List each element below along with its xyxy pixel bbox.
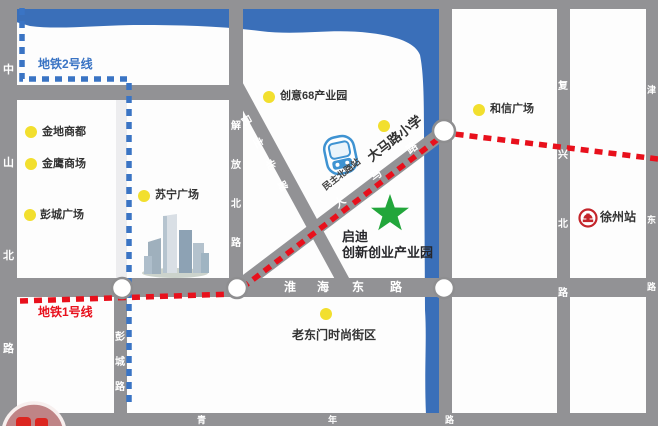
minor-street bbox=[116, 100, 127, 278]
poi-dot-laodongmen bbox=[320, 308, 332, 320]
road-char-huaihai: 淮 bbox=[284, 281, 296, 293]
location-map: 地铁2号线 地铁1号线 中 山 北 路 解 放 北 路 彭 城 路 复 兴 北 … bbox=[0, 0, 658, 426]
road-char: 北 bbox=[558, 219, 568, 231]
road-char-east: 东 bbox=[647, 214, 656, 226]
road-char: 路 bbox=[231, 238, 241, 250]
poi-dot-school bbox=[378, 120, 390, 132]
poi-dot-chuangyi68 bbox=[263, 91, 275, 103]
poi-label-chuangyi68: 创意68产业园 bbox=[280, 90, 347, 103]
road-char: 兴 bbox=[558, 150, 568, 162]
road-label-pengcheng: 彭 城 路 bbox=[115, 332, 125, 394]
road-label-fuxing: 复 兴 北 路 bbox=[558, 81, 568, 300]
road-char: 彭 bbox=[115, 332, 125, 344]
junction-node bbox=[434, 278, 454, 298]
road-char-huaihai: 东 bbox=[352, 281, 364, 293]
poi-label-laodongmen: 老东门时尚街区 bbox=[292, 329, 376, 342]
road-char-huaihai: 海 bbox=[317, 281, 329, 293]
road-char: 复 bbox=[558, 81, 568, 93]
road-char-qingnian: 年 bbox=[328, 414, 337, 426]
road-riverside bbox=[439, 8, 452, 415]
road-char-huaihai: 路 bbox=[390, 281, 402, 293]
road-west-upper bbox=[0, 85, 244, 100]
star-icon bbox=[371, 194, 409, 230]
road-label-zhongshan: 中 山 北 路 bbox=[3, 64, 14, 355]
road-char: 放 bbox=[231, 160, 241, 172]
road-char-qingnian: 路 bbox=[445, 414, 454, 426]
road-east-edge bbox=[646, 0, 658, 426]
railway-station-icon bbox=[580, 210, 597, 227]
metro-line2-label: 地铁2号线 bbox=[38, 55, 93, 72]
poi-dot-hexin bbox=[473, 104, 485, 116]
railway-station-label: 徐州站 bbox=[600, 211, 636, 224]
poi-label-jindi: 金地商都 bbox=[42, 126, 86, 139]
poi-dot-pengcheng-square bbox=[24, 209, 36, 221]
metro-line1-label: 地铁1号线 bbox=[38, 303, 93, 320]
road-label-jiefang: 解 放 北 路 bbox=[231, 121, 241, 250]
road-char-qingnian: 青 bbox=[197, 414, 206, 426]
poi-label-hexin: 和信广场 bbox=[490, 103, 534, 116]
junction-node bbox=[227, 278, 247, 298]
poi-label-pengcheng-square: 彭城广场 bbox=[40, 209, 84, 222]
building-illustration bbox=[142, 214, 209, 278]
road-char: 中 bbox=[3, 64, 14, 76]
road-char: 路 bbox=[3, 343, 14, 355]
road-char-east: 津 bbox=[647, 84, 656, 96]
road-char: 山 bbox=[3, 157, 14, 169]
road-char: 北 bbox=[231, 199, 241, 211]
road-char: 北 bbox=[3, 250, 14, 262]
poi-label-suning: 苏宁广场 bbox=[155, 189, 199, 202]
road-char-east: 路 bbox=[647, 281, 656, 293]
highlight-name-line2: 创新创业产业园 bbox=[342, 242, 433, 261]
road-char: 路 bbox=[115, 382, 125, 394]
junction-node bbox=[112, 278, 132, 298]
poi-dot-jindi bbox=[25, 126, 37, 138]
road-char: 城 bbox=[115, 357, 125, 369]
poi-dot-suning bbox=[138, 190, 150, 202]
poi-label-jinying: 金鹰商场 bbox=[42, 158, 86, 171]
road-char: 路 bbox=[558, 288, 568, 300]
poi-dot-jinying bbox=[25, 158, 37, 170]
